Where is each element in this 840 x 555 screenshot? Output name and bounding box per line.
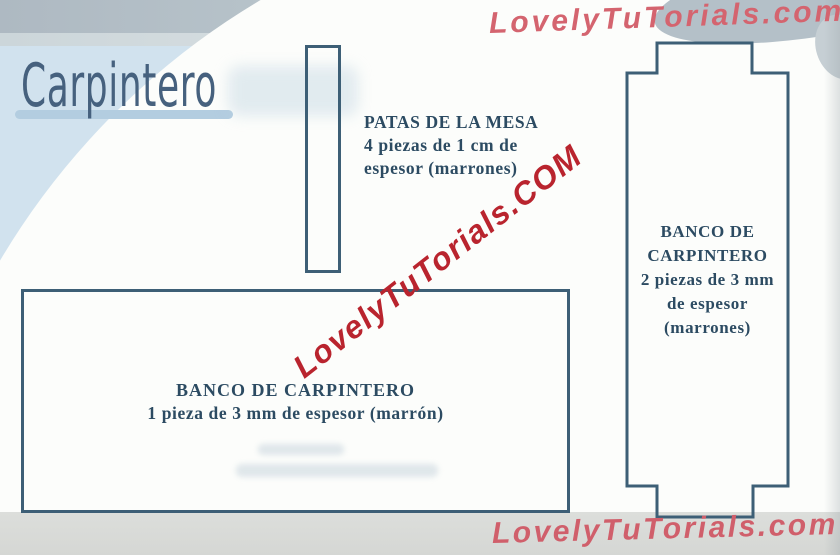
table-legs-label-spec1: 4 piezas de 1 cm de <box>364 134 574 157</box>
table-leg-template-outline <box>305 45 341 273</box>
bench-board-label-spec: 1 pieza de 3 mm de espesor (marrón) <box>147 402 443 425</box>
table-legs-label-name: PATAS DE LA MESA <box>364 111 574 134</box>
bench-sides-label-spec2: de espesor <box>627 292 788 316</box>
bench-sides-label-name1: BANCO DE <box>627 220 788 244</box>
bench-sides-label-name2: CARPINTERO <box>627 244 788 268</box>
bleed-through-ghost-line <box>236 464 438 477</box>
bench-board-template-outline: BANCO DE CARPINTERO 1 pieza de 3 mm de e… <box>21 289 570 513</box>
bench-sides-label-spec3: (marrones) <box>627 316 788 340</box>
bench-sides-label-spec1: 2 piezas de 3 mm <box>627 268 788 292</box>
bleed-through-ghost-line <box>258 444 344 455</box>
bench-sides-label: BANCO DE CARPINTERO 2 piezas de 3 mm de … <box>627 220 788 340</box>
right-page-edge-shadow <box>824 0 840 555</box>
page-title: Carpintero <box>21 56 217 116</box>
bench-board-label: BANCO DE CARPINTERO 1 pieza de 3 mm de e… <box>147 377 443 425</box>
bench-board-label-name: BANCO DE CARPINTERO <box>147 379 443 402</box>
scanned-template-page: Carpintero PATAS DE LA MESA 4 piezas de … <box>0 0 840 555</box>
